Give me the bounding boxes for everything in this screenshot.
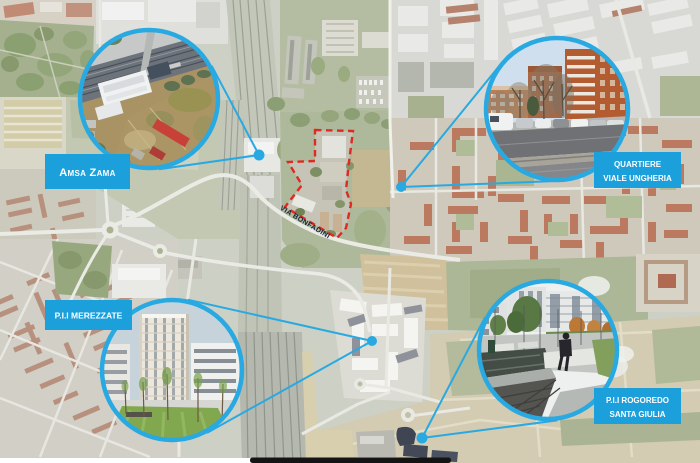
svg-text:VIALE UNGHERIA: VIALE UNGHERIA <box>603 174 672 183</box>
svg-text:P.I.I MEREZZATE: P.I.I MEREZZATE <box>55 311 123 321</box>
svg-text:Amsa Zama: Amsa Zama <box>59 167 115 179</box>
svg-text:QUARTIERE: QUARTIERE <box>614 160 662 169</box>
svg-text:SANTA GIULIA: SANTA GIULIA <box>610 410 666 419</box>
svg-text:P.I.I ROGOREDO: P.I.I ROGOREDO <box>606 396 669 405</box>
